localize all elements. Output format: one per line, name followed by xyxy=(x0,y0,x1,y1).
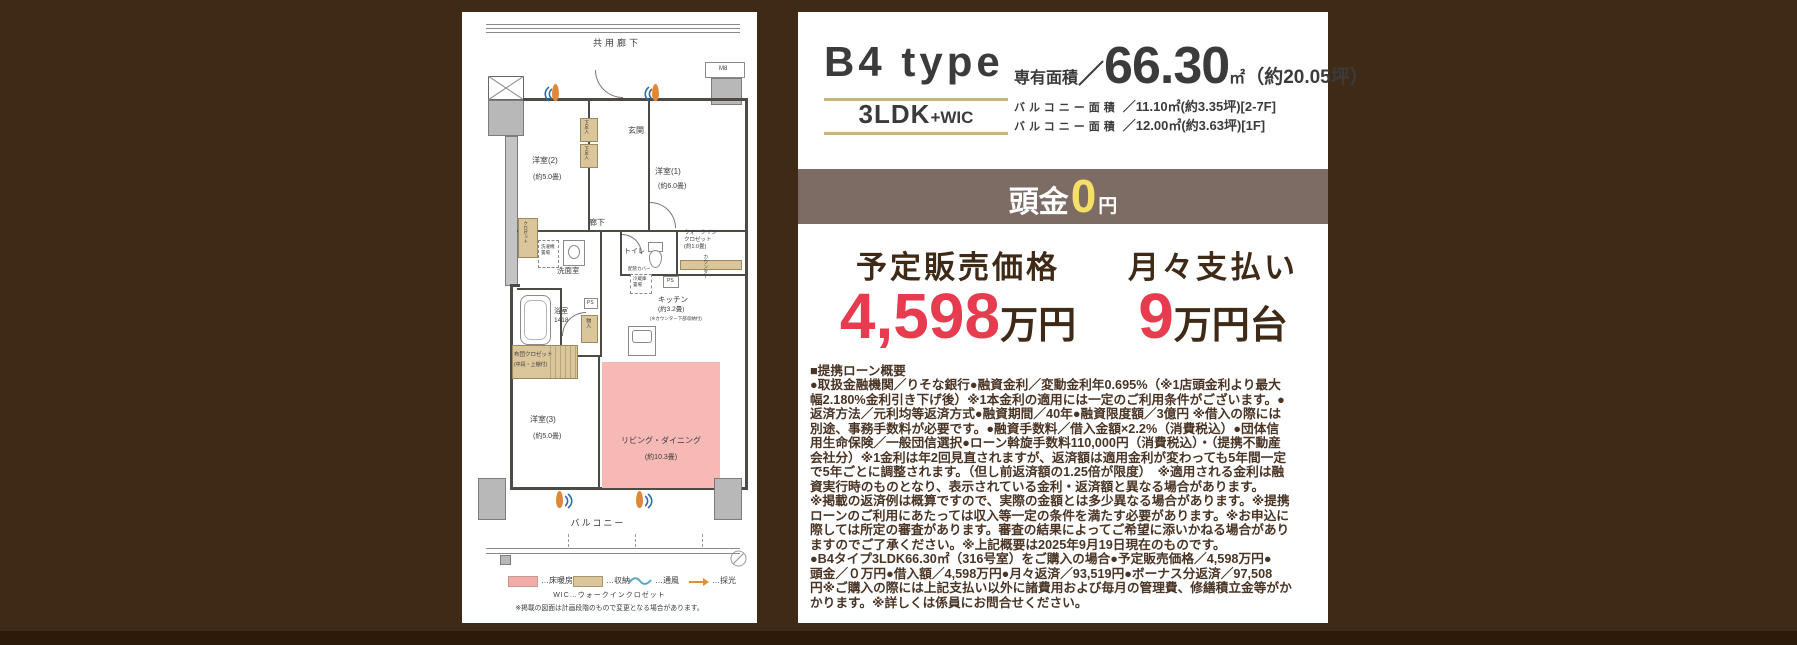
western3-size: (約5.0畳) xyxy=(533,433,561,442)
exclusive-area: 専有面積／66.30㎡（約20.05坪） xyxy=(1014,36,1369,96)
kitchen-sink-icon xyxy=(632,330,652,343)
bath-label: 浴室 xyxy=(554,308,568,317)
wic-shelf xyxy=(680,260,742,270)
downpayment-value: 0 xyxy=(1069,170,1099,222)
ventilation-icon xyxy=(565,493,575,509)
floorplan-panel: 共用廊下 M8 xyxy=(462,12,757,623)
flyer-canvas: 共用廊下 M8 xyxy=(0,0,1797,645)
balcony-divider xyxy=(702,534,703,547)
wall xyxy=(600,230,602,356)
corridor-line xyxy=(486,32,740,33)
storage-legend-label: …収納 xyxy=(606,576,630,586)
futon-closet-note: (中段・上棚付) xyxy=(514,362,547,368)
ps-label: PS xyxy=(587,300,594,306)
ventilation-icon xyxy=(642,86,652,102)
genkan-label: 玄関 xyxy=(628,126,644,136)
area-tsubo: （約20.05坪） xyxy=(1245,67,1369,88)
area-label: 専有面積 xyxy=(1014,70,1078,87)
toilet-label: トイレ xyxy=(624,248,645,257)
living-size: (約10.3畳) xyxy=(645,454,677,463)
price-unit: 万円 xyxy=(1000,305,1076,347)
layout-main: 3LDK xyxy=(859,99,931,129)
western2-label: 洋室(2) xyxy=(532,156,558,166)
door-arc xyxy=(595,70,623,98)
info-panel: B4 type 3LDK+WIC 専有面積／66.30㎡（約20.05坪） バル… xyxy=(798,12,1328,623)
floor-heating-label: …床暖房 xyxy=(541,576,573,586)
ps-label: PS xyxy=(667,278,674,284)
downpayment-label: 頭金 xyxy=(1009,186,1069,219)
type-name: B4 type xyxy=(824,38,1004,86)
elevator-block xyxy=(488,100,524,136)
kitchen-label: キッチン xyxy=(658,295,688,304)
futon-closet-label: 布団クロゼット xyxy=(514,352,553,359)
fridge-label: 冷蔵庫 置場 xyxy=(633,276,647,287)
area-slash: ／ xyxy=(1078,59,1104,89)
balcony-area-label: バルコニー面積 xyxy=(1014,102,1119,114)
structural-column xyxy=(478,478,506,520)
pipe-cover-label: 配管カバー xyxy=(628,266,651,272)
living-dining-area xyxy=(602,362,720,488)
downpayment-band: 頭金0円 xyxy=(798,169,1328,224)
gold-rule xyxy=(824,132,1008,135)
balcony-edge-line xyxy=(486,553,740,554)
common-corridor-label: 共用廊下 xyxy=(593,38,641,49)
compass-icon xyxy=(730,550,747,567)
wall xyxy=(517,288,562,290)
counter-label: カウンター xyxy=(702,254,708,279)
corridor-line xyxy=(486,28,740,29)
ventilation-icon xyxy=(542,86,552,102)
area-unit: ㎡ xyxy=(1229,70,1245,87)
balcony-area-label: バルコニー面積 xyxy=(1014,121,1119,133)
living-label: リビング・ダイニング xyxy=(621,436,701,446)
wall xyxy=(510,284,513,490)
bath-size: 1418 xyxy=(554,317,568,325)
bottom-strip xyxy=(0,631,1797,645)
balcony-area-value: ／12.00㎡(約3.63坪)[1F] xyxy=(1123,118,1265,133)
balcony-divider xyxy=(568,534,569,547)
closet2-label: クロゼット xyxy=(523,221,529,244)
storage-label: 物入 xyxy=(585,318,591,328)
bathtub-icon xyxy=(524,300,547,340)
daylight-icon xyxy=(552,84,559,101)
price-number: 4,598 xyxy=(840,280,1000,352)
ventilation-legend-icon xyxy=(628,576,652,587)
kitchen-size: (約3.2畳) xyxy=(658,306,684,314)
wic-label: ウォークイン クロゼット (約1.0畳) xyxy=(684,230,717,251)
wall xyxy=(745,98,748,490)
m8-label: M8 xyxy=(719,66,727,74)
planned-price-value: 4,598万円 xyxy=(828,279,1088,353)
corridor-line xyxy=(486,24,740,25)
balcony-divider xyxy=(635,534,636,547)
hallway-label: 廊下 xyxy=(589,218,605,228)
wall-strip xyxy=(505,136,518,286)
balcony-area-value: ／11.10㎡(約3.35坪)[2-7F] xyxy=(1123,99,1276,114)
balcony-edge-line xyxy=(486,548,740,549)
western3-label: 洋室(3) xyxy=(530,415,556,425)
wall xyxy=(510,284,520,287)
loan-notes: ■提携ローン概要 ●取扱金融機関／りそな銀行●融資金利／変動金利年0.695%（… xyxy=(810,364,1326,610)
drain-box xyxy=(500,555,511,565)
monthly-payment-value: 9万円台 xyxy=(1108,279,1318,353)
daylight-icon xyxy=(652,84,659,101)
ventilation-legend-label: …通風 xyxy=(655,576,679,586)
area-value: 66.30 xyxy=(1104,37,1229,95)
kitchen-note: (※カウンター下部収納付) xyxy=(650,316,702,322)
shoe-cabinet-label: 下足入 xyxy=(584,146,590,160)
washroom-label: 洗面室 xyxy=(557,266,580,275)
floor-heating-swatch xyxy=(508,576,538,587)
layout-sub: +WIC xyxy=(930,108,973,127)
laundry-label: 洗濯機 置場 xyxy=(541,244,555,255)
futon-closet-hatch xyxy=(546,346,577,378)
door-arc xyxy=(650,202,676,228)
wic-note: WIC…ウォークインクロゼット xyxy=(462,592,757,601)
daylight-icon xyxy=(636,491,643,508)
layout-name: 3LDK+WIC xyxy=(824,99,1008,130)
washstand-basin-icon xyxy=(568,245,580,259)
downpayment-unit: 円 xyxy=(1098,196,1117,217)
storage-swatch xyxy=(573,576,603,587)
western1-size: (約6.0畳) xyxy=(658,183,686,192)
plan-disclaimer: ※掲載の図面は計画段階のもので変更となる場合があります。 xyxy=(462,605,757,613)
daylight-legend-label: …採光 xyxy=(712,576,736,586)
monthly-unit: 万円台 xyxy=(1174,305,1288,347)
stair-brace-icon xyxy=(488,76,524,100)
balcony-area-2: バルコニー面積／12.00㎡(約3.63坪)[1F] xyxy=(1014,115,1265,135)
balcony-label: バルコニー xyxy=(571,518,626,529)
daylight-icon xyxy=(556,491,563,508)
western1-label: 洋室(1) xyxy=(655,167,681,177)
monthly-payment-group: 月々支払い 9万円台 xyxy=(1108,242,1318,353)
daylight-legend-icon xyxy=(688,577,710,587)
monthly-number: 9 xyxy=(1138,280,1174,352)
shoe-cabinet-label: 下足入 xyxy=(584,120,590,134)
wall xyxy=(598,355,600,488)
ventilation-icon xyxy=(645,493,655,509)
wall xyxy=(676,230,678,276)
balcony-area-1: バルコニー面積／11.10㎡(約3.35坪)[2-7F] xyxy=(1014,96,1276,116)
western2-size: (約5.0畳) xyxy=(533,174,561,183)
structural-column xyxy=(714,478,742,520)
planned-price-group: 予定販売価格 4,598万円 xyxy=(828,242,1088,353)
